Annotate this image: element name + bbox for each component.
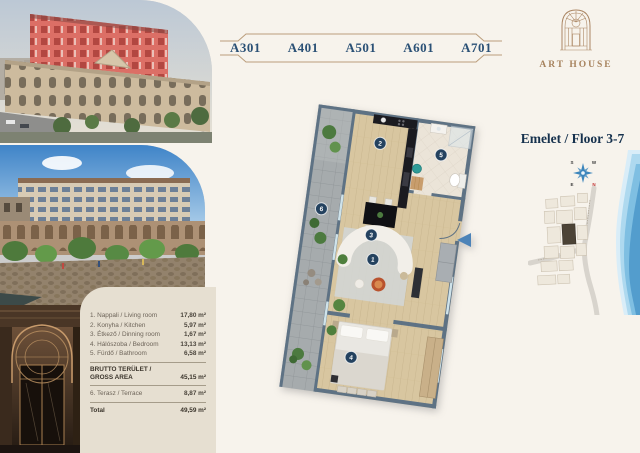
room-area: 13,13 m² <box>180 340 206 350</box>
unit-tab-a601[interactable]: A601 <box>403 40 434 56</box>
gross-area-label: BRUTTO TERÜLET / GROSS AREA <box>90 366 151 382</box>
map-buildings <box>533 193 592 285</box>
terrace-row: 6. Terasz / Terrace 8,87 m² <box>90 389 206 399</box>
room-label: 3. Étkező / Dinning room <box>90 330 160 340</box>
site-map: S W E N <box>528 150 640 315</box>
brochure-page: 1. Nappali / Living room 17,80 m² 2. Kon… <box>0 0 640 453</box>
unit-tab-a501[interactable]: A501 <box>346 40 377 56</box>
terrace-value: 8,87 m² <box>184 389 206 399</box>
site-building-highlight <box>562 224 576 245</box>
gross-area-row: BRUTTO TERÜLET / GROSS AREA 45,15 m² <box>90 366 206 382</box>
unit-tab-a401[interactable]: A401 <box>288 40 319 56</box>
brand-logo: ART HOUSE <box>530 6 622 70</box>
table-divider <box>90 385 206 386</box>
table-row: 1. Nappali / Living room 17,80 m² <box>90 311 206 321</box>
floor-plan: 1 2 3 4 5 6 <box>268 98 486 420</box>
total-label: Total <box>90 406 105 416</box>
photo-building-render <box>0 0 212 143</box>
room-label: 1. Nappali / Living room <box>90 311 157 321</box>
table-row: 4. Hálószoba / Bedroom 13,13 m² <box>90 340 206 350</box>
photo-riverside-view <box>0 145 205 305</box>
compass-letter: E <box>570 182 573 187</box>
photo-entrance <box>0 305 85 453</box>
building-render-illustration <box>0 0 212 143</box>
table-row: 5. Fürdő / Bathroom 6,58 m² <box>90 349 206 359</box>
terrace-label: 6. Terasz / Terrace <box>90 389 142 399</box>
unit-tab-a701[interactable]: A701 <box>461 40 492 56</box>
unit-selector: A301 A401 A501 A601 A701 <box>216 30 506 66</box>
room-label: 2. Konyha / Kitchen <box>90 321 145 331</box>
table-divider <box>90 362 206 363</box>
brand-name: ART HOUSE <box>530 60 622 70</box>
room-area: 6,58 m² <box>184 349 206 359</box>
river <box>616 150 640 315</box>
area-table-panel: 1. Nappali / Living room 17,80 m² 2. Kon… <box>80 287 216 453</box>
compass-letter: W <box>592 160 597 165</box>
compass-letter: N <box>592 182 595 187</box>
table-row: 2. Konyha / Kitchen 5,97 m² <box>90 321 206 331</box>
room-area: 5,97 m² <box>184 321 206 331</box>
total-value: 49,59 m² <box>180 406 206 416</box>
table-divider <box>90 402 206 403</box>
room-label: 5. Fürdő / Bathroom <box>90 349 147 359</box>
riverside-illustration <box>0 145 205 305</box>
arch-window-icon <box>556 6 596 54</box>
entrance-illustration <box>0 305 85 453</box>
room-area: 1,67 m² <box>184 330 206 340</box>
gross-area-value: 45,15 m² <box>180 373 206 383</box>
unit-tab-a301[interactable]: A301 <box>230 40 261 56</box>
floor-label: Emelet / Floor 3-7 <box>505 131 640 147</box>
room-label: 4. Hálószoba / Bedroom <box>90 340 159 350</box>
room-area: 17,80 m² <box>180 311 206 321</box>
total-row: Total 49,59 m² <box>90 406 206 416</box>
compass-icon: S W E N <box>570 160 596 187</box>
table-row: 3. Étkező / Dinning room 1,67 m² <box>90 330 206 340</box>
compass-letter: S <box>570 160 573 165</box>
